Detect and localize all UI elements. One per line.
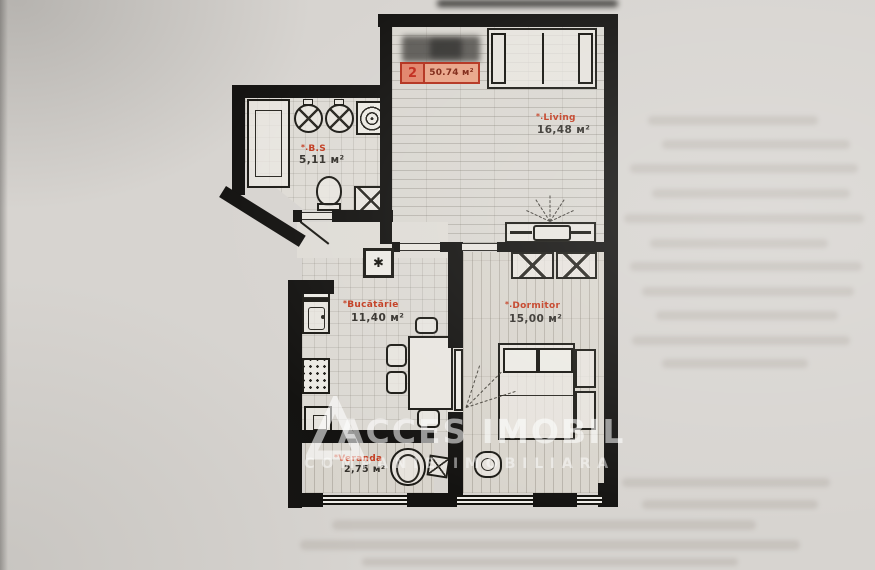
watermark-subtitle: COMPANIE IMOBILIARA	[304, 456, 615, 472]
photo-edge-shadow	[437, 0, 618, 7]
wall-top	[378, 14, 618, 27]
chair	[415, 317, 438, 334]
sofa-armrest	[491, 33, 506, 84]
bleed-through-mark	[332, 520, 756, 530]
sofa	[487, 28, 597, 89]
bleed-through-mark	[642, 287, 854, 296]
entry-door-smudge-dark	[430, 39, 462, 58]
window-bedroom-small	[577, 495, 602, 505]
sofa-cushion-divider	[542, 33, 544, 84]
wall-bottom	[288, 493, 323, 507]
bleed-through-mark	[656, 311, 838, 320]
window-bedroom	[457, 495, 533, 505]
kitchen-area: 11,40 м²	[351, 312, 404, 324]
sink-fixture	[334, 99, 344, 105]
wardrobe	[556, 252, 597, 279]
unit-area-badge: 2 50.74 м²	[400, 62, 480, 84]
sink	[325, 104, 354, 133]
window-veranda	[323, 495, 407, 505]
bleed-through-mark	[642, 500, 818, 509]
tv-stand-bar	[569, 231, 591, 234]
living-name: Living	[543, 113, 575, 123]
bathtub-basin	[255, 110, 282, 177]
wall-bottom	[533, 493, 577, 507]
ventilation-shaft: ✱	[363, 248, 394, 278]
wall-kitchen-bedroom	[448, 242, 463, 348]
kitchen-faucet	[321, 315, 325, 319]
living-label: *.Living	[536, 111, 576, 124]
bedroom-door-leaf	[454, 349, 463, 411]
sink	[294, 104, 323, 133]
unit-number: 2	[402, 64, 425, 82]
sofa-armrest	[578, 33, 593, 84]
bleed-through-mark	[300, 540, 800, 550]
bleed-through-mark	[650, 239, 828, 248]
wardrobe	[511, 252, 554, 279]
wall-bottom	[407, 493, 457, 507]
bedroom-area: 15,00 м²	[509, 313, 562, 325]
bedroom-label: *.Dormitor	[505, 299, 560, 312]
door-swing-arc	[464, 354, 520, 412]
bleed-through-mark	[630, 262, 862, 271]
chair	[386, 344, 407, 367]
bleed-through-mark	[362, 558, 738, 566]
scanned-floorplan-page: ✱ 2 50.74 м²	[0, 0, 875, 570]
stove	[302, 358, 330, 394]
chair	[386, 371, 407, 394]
window-glass-line	[457, 499, 533, 501]
bleed-through-mark	[622, 478, 830, 487]
bleed-through-mark	[630, 164, 858, 173]
tv-viewing-rays	[506, 196, 594, 224]
bleed-through-mark	[632, 336, 850, 345]
vent-symbol: ✱	[373, 256, 384, 271]
wall-bathroom-left	[232, 85, 245, 195]
bedroom-name: Dormitor	[512, 301, 560, 311]
nightstand	[575, 349, 596, 388]
door-threshold-living-bedroom	[462, 243, 497, 251]
bleed-through-mark	[662, 359, 808, 368]
watermark-title: ACCES IMOBIL	[338, 412, 625, 451]
bathroom-area: 5,11 м²	[299, 154, 345, 166]
bathtub	[247, 99, 290, 188]
window-glass-line	[323, 499, 407, 501]
wall-living-bottom	[497, 242, 604, 252]
window-glass-line	[577, 499, 602, 501]
kitchen-label: *Bucătărie	[343, 298, 399, 311]
bleed-through-mark	[652, 189, 850, 198]
door-threshold-bathroom	[302, 212, 332, 220]
wall-bathroom-bottom	[332, 210, 393, 222]
bleed-through-mark	[648, 116, 818, 125]
tv-stand	[505, 222, 596, 243]
door-threshold-living-hall	[400, 243, 440, 251]
dining-table	[408, 336, 453, 410]
wall-left-main	[288, 280, 302, 508]
sink-fixture	[303, 99, 313, 105]
kitchen-sink-unit	[302, 300, 330, 334]
bleed-through-mark	[624, 214, 864, 223]
bathroom-name: B.S	[308, 144, 326, 154]
wall-bathroom-top	[232, 85, 390, 98]
tv-ray	[550, 196, 551, 222]
unit-total-area: 50.74 м²	[425, 64, 478, 82]
living-area: 16,48 м²	[537, 124, 590, 136]
tv-screen	[533, 225, 571, 241]
bleed-through-mark	[662, 140, 850, 149]
toilet	[316, 176, 342, 206]
kitchen-name: Bucătărie	[347, 300, 398, 310]
pillow	[538, 348, 573, 373]
tv-stand-bar	[510, 231, 532, 234]
